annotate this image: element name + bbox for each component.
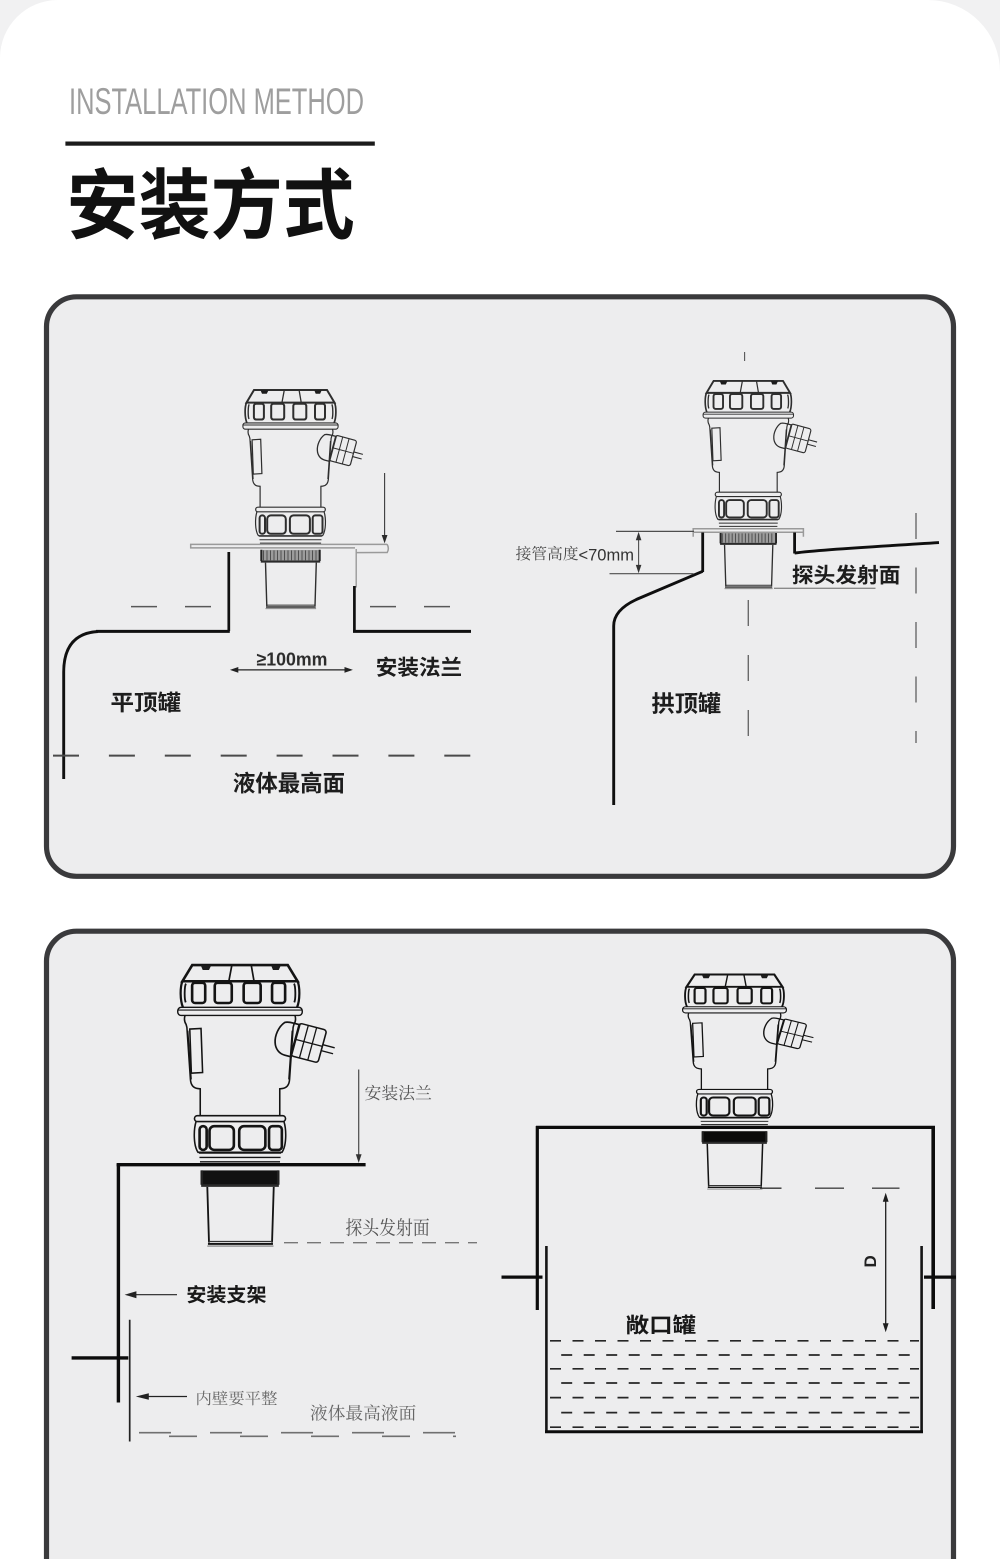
svg-text:<70mm: <70mm [579, 546, 634, 564]
svg-text:INSTALLATION METHOD: INSTALLATION METHOD [69, 81, 364, 122]
svg-text:≥100mm: ≥100mm [257, 649, 328, 669]
svg-text:D: D [861, 1255, 880, 1267]
